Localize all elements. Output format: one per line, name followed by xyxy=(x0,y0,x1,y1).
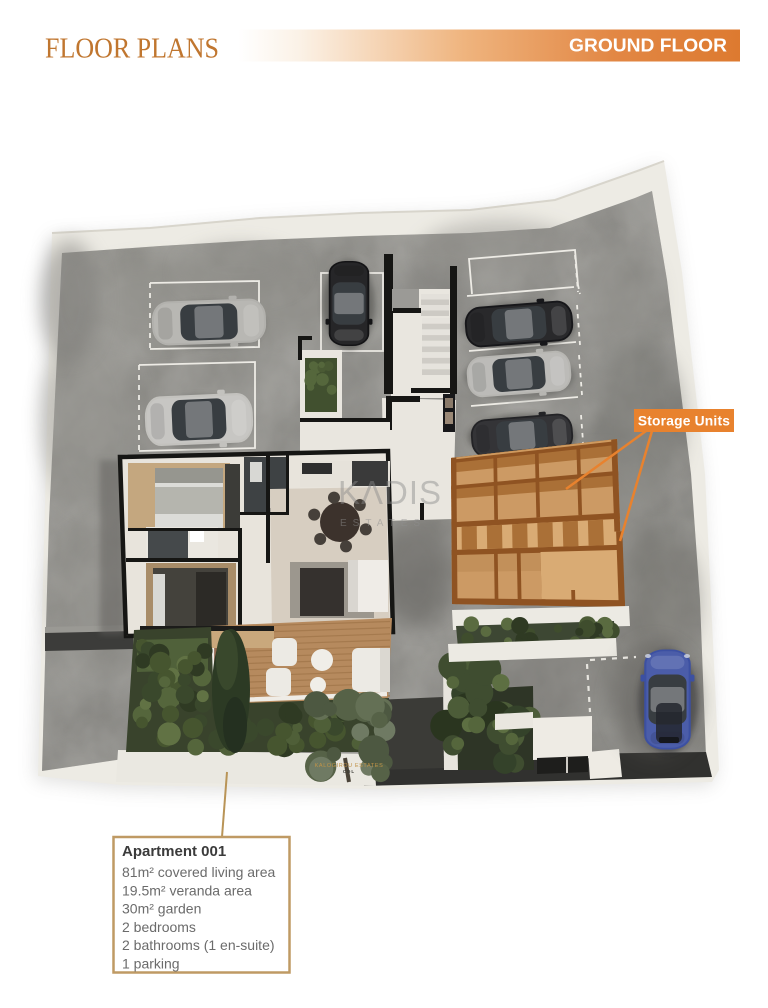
svg-text:2 bathrooms (1 en-suite): 2 bathrooms (1 en-suite) xyxy=(122,937,275,953)
svg-text:Apartment 001: Apartment 001 xyxy=(122,843,226,860)
svg-text:CDL: CDL xyxy=(343,769,355,774)
svg-text:30m² garden: 30m² garden xyxy=(122,901,201,917)
svg-text:81m² covered living area: 81m² covered living area xyxy=(122,864,276,880)
svg-text:KΛDIS: KΛDIS xyxy=(338,474,442,511)
svg-text:2 bedrooms: 2 bedrooms xyxy=(122,919,196,935)
svg-text:ESTATES: ESTATES xyxy=(340,518,426,529)
svg-text:19.5m² veranda area: 19.5m² veranda area xyxy=(122,882,252,898)
svg-text:GROUND FLOOR: GROUND FLOOR xyxy=(569,36,727,56)
svg-text:1 parking: 1 parking xyxy=(122,956,180,972)
svg-text:FLOOR PLANS: FLOOR PLANS xyxy=(45,33,219,65)
svg-text:Storage Units: Storage Units xyxy=(638,414,730,429)
